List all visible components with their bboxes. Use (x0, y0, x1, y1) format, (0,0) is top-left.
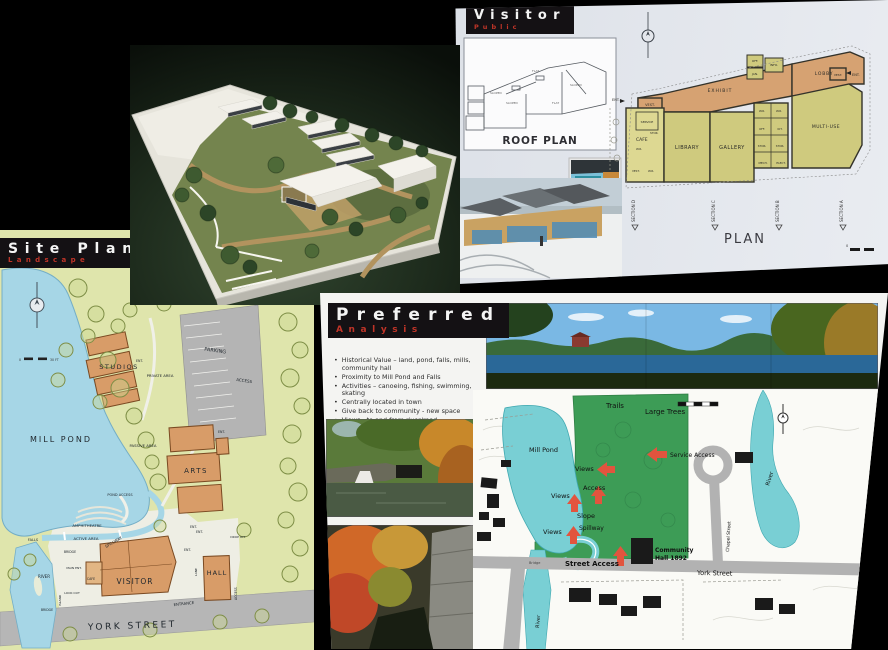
north-arrow-icon (642, 12, 654, 58)
preferred-title: Preferred (336, 306, 501, 326)
label-mill-pond: MILL POND (30, 435, 92, 444)
section-marker-c: SECTION C (711, 200, 716, 222)
label-ent-arts2: ENT. (190, 525, 197, 529)
roof-label-flat-a: FLAT (532, 69, 539, 73)
room-label-stor-c: STOR. (776, 144, 785, 148)
label-york-street: York Street (696, 569, 733, 578)
room-label-gallery: GALLERY (719, 145, 745, 151)
label-service-access: Service Access (670, 452, 715, 459)
label-bridge-upper: BRIDGE (64, 550, 76, 554)
room-label-wr-c: W.R. (759, 109, 765, 113)
section-cut-triangles (632, 225, 846, 230)
label-ent-right: ENT. (852, 73, 860, 77)
room-label-cafe: CAFE (636, 137, 648, 143)
label-access-hall: ACCESS (234, 587, 238, 600)
label-private-area: PRIVATE AREA (147, 373, 174, 378)
visitor-board: Visitor Public SLOPED (452, 0, 888, 284)
label-hall: HALL (207, 569, 228, 577)
room-label-library: LIBRARY (675, 145, 700, 151)
label-mill-pond: Mill Pond (529, 446, 558, 454)
svg-text:0: 0 (846, 244, 848, 248)
label-community-hall-1: Community (655, 547, 693, 554)
room-label-kit: KIT. (778, 127, 783, 131)
stream-water (326, 483, 474, 517)
falls-photo (326, 419, 474, 517)
label-river: RIVER (38, 574, 50, 579)
label-ent-visitor: ENT. (184, 548, 191, 552)
room-label-jan: JAN. (751, 72, 758, 76)
room-label-off-a: OFF. (752, 59, 758, 63)
roof-label-sloped-c: SLOPED (490, 91, 503, 95)
label-cafe: CAFE (87, 577, 95, 581)
visitor-title-block: Visitor Public (466, 6, 574, 34)
room-label-wr-b: W.R. (648, 169, 654, 173)
label-pond-access: POND ACCESS (107, 493, 133, 497)
room-label-stor-a: STOR. (650, 131, 659, 135)
person-silhouette (540, 236, 543, 246)
label-bridge-lower: BRIDGE (41, 608, 53, 612)
scale-bar (678, 402, 718, 406)
room-label-multi-use: MULTI-USE (812, 124, 840, 130)
room-label-stor-b: STOR. (758, 144, 767, 148)
foreground-bank (486, 373, 878, 389)
list-item: •Proximity to Mill Pond and Falls (334, 374, 486, 382)
room-label-service: SERVICE (641, 120, 654, 124)
bullet-dot: • (334, 383, 338, 398)
label-views-a: Views (575, 465, 594, 473)
label-large-trees: Large Trees (645, 408, 686, 416)
bullet-dot: • (334, 399, 338, 407)
roof-label-sloped-a: SLOPED (506, 101, 519, 105)
preferred-title-block: Preferred Analysis (328, 303, 509, 338)
stone-wall (428, 525, 474, 650)
section-marker-d: SECTION D (631, 200, 636, 222)
label-lane: LANE (194, 568, 198, 576)
label-ent-arts: ENT. (218, 430, 225, 434)
autumn-creek-photo (326, 525, 474, 650)
label-look-out: LOOK OUT (64, 591, 80, 595)
preferred-board: Preferred Analysis •Historical Value – l… (320, 293, 888, 649)
plan-caption: PLAN (724, 232, 766, 247)
label-access: Access (583, 484, 606, 492)
room-label-wr-d: W.R. (776, 109, 782, 113)
room-label-off-b: OFF. (759, 127, 765, 131)
room-label-exhibit: EXHIBIT (708, 88, 733, 94)
list-item: •Centrally located in town (334, 399, 486, 407)
community-hall-building (631, 538, 653, 564)
bullet-text: Historical Value – land, pond, falls, mi… (342, 357, 486, 372)
label-active-area: ACTIVE AREA (73, 536, 98, 541)
scale-bar: 0 (846, 244, 874, 251)
room-label-vest-cafe: VEST. (632, 169, 640, 173)
label-slope: Slope (577, 512, 595, 520)
room-label-mech: MECH. (758, 161, 767, 165)
bullet-dot: • (334, 408, 338, 416)
siteplan-subtitle: Landscape (8, 257, 139, 265)
label-visitor: VISITOR (116, 577, 153, 586)
label-views-c: Views (543, 528, 562, 536)
svg-text:30 FT: 30 FT (50, 358, 59, 362)
siteplan-title-block: Site Plan Landscape (0, 238, 147, 268)
room-label-vest-left: VEST. (645, 103, 655, 107)
room-label-vest-right: VEST. (834, 73, 842, 77)
section-marker-a: SECTION A (839, 200, 844, 222)
label-trails: Trails (605, 402, 624, 410)
section-marker-b: SECTION B (775, 200, 780, 222)
room-label-info: INFO. (770, 63, 778, 67)
room-label-elect: ELECT. (776, 161, 785, 165)
cave-shadow (396, 465, 422, 478)
siteplan-title: Site Plan (8, 241, 139, 257)
visitor-title: Visitor (474, 9, 566, 24)
label-river-left: River (535, 614, 542, 628)
photo-of-presentation-boards: Site Plan Landscape (0, 0, 888, 650)
roof-label-flat-b: FLAT (552, 101, 559, 105)
preferred-subtitle: Analysis (336, 326, 501, 336)
list-item: •Give back to community - new space (334, 408, 486, 416)
label-spillway: Spillway (579, 525, 604, 532)
room-label-lobby: LOBBY (815, 71, 834, 77)
label-passive-area: PASSIVE AREA (129, 443, 156, 448)
label-falls: FALLS (28, 538, 39, 542)
roof-label-sloped-b: SLOPED (570, 83, 583, 87)
room-label-wr-a: W.R. (636, 147, 642, 151)
river-panorama-photo (486, 303, 878, 389)
model-photo (130, 45, 460, 305)
bullet-text: Activities – canoeing, fishing, swimming… (342, 383, 486, 398)
label-amphitheatre: AMPHITHEATRE (72, 523, 102, 528)
label-community-hall-2: Hall 1892 (655, 555, 687, 562)
bullet-dot: • (334, 374, 338, 382)
label-ent-studios: ENT. (136, 359, 143, 363)
label-studios: STUDIOS (99, 363, 139, 371)
label-main-ent: MAIN ENT. (66, 566, 81, 570)
roof-plan: SLOPED SLOPED SLOPED FLAT FLAT ROOF PLAN (464, 38, 616, 150)
svg-text:0: 0 (19, 358, 21, 362)
visitor-subtitle: Public (474, 24, 566, 31)
label-island: ISLAND (58, 594, 62, 606)
model-photo-image (130, 45, 460, 305)
roof-plan-caption: ROOF PLAN (502, 135, 577, 147)
bullet-text: Proximity to Mill Pond and Falls (342, 374, 441, 382)
list-item: •Activities – canoeing, fishing, swimmin… (334, 383, 486, 398)
label-bridge: Bridge (529, 561, 540, 565)
bullet-text: Give back to community - new space (342, 408, 461, 416)
label-ent-left: ENT. (612, 98, 620, 102)
label-drop-off: DROP OFF (230, 535, 246, 539)
floor-plan (610, 46, 870, 188)
bullet-dot: • (334, 357, 338, 372)
label-ent-hall: ENT. (196, 530, 203, 534)
label-views-b: Views (551, 492, 570, 500)
exterior-rendering (452, 178, 622, 278)
hall-building (203, 556, 231, 601)
label-street-access: Street Access (565, 560, 619, 568)
bullet-text: Centrally located in town (342, 399, 422, 407)
list-item: •Historical Value – land, pond, falls, m… (334, 357, 486, 372)
preferred-analysis-map: Trails Large Trees Mill Pond Views Acces… (473, 390, 888, 650)
visitor-drawings: SLOPED SLOPED SLOPED FLAT FLAT ROOF PLAN (452, 0, 888, 284)
label-arts: ARTS (184, 467, 208, 475)
